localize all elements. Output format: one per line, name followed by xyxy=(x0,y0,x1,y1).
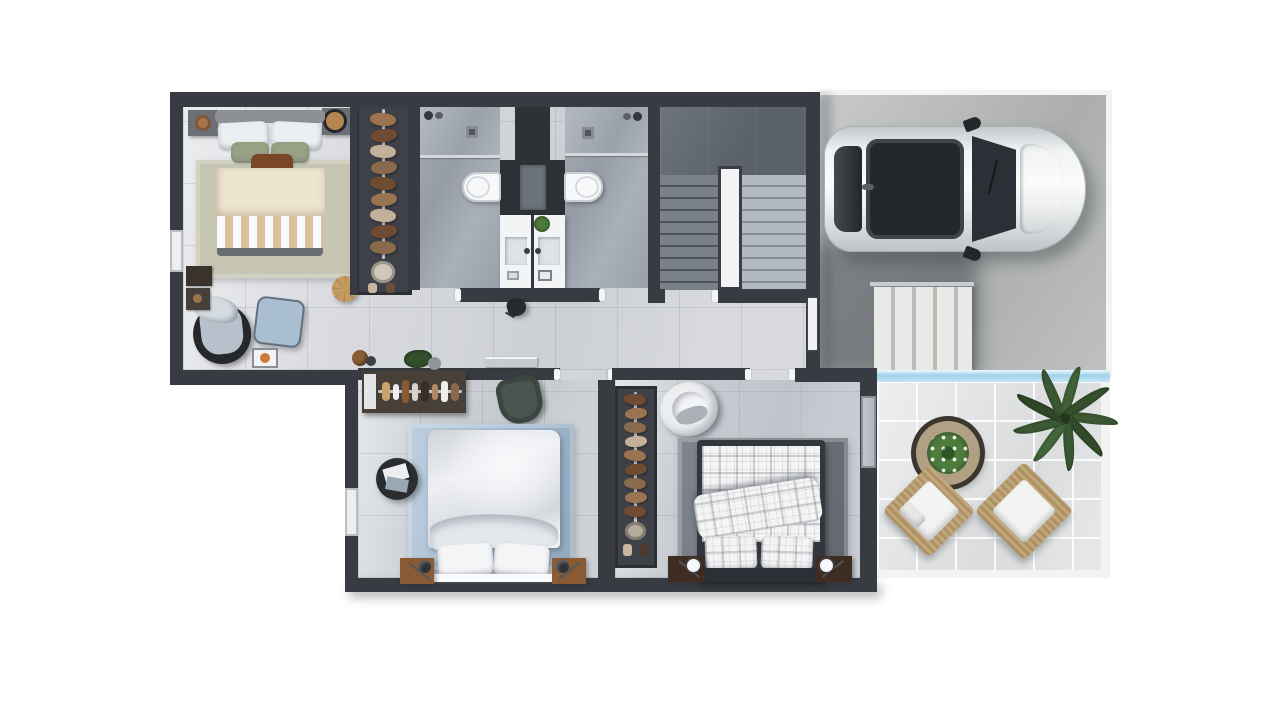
closet-top xyxy=(356,103,412,295)
vanity-plant xyxy=(534,216,550,232)
bottle xyxy=(421,381,429,402)
bed1-duvet xyxy=(215,168,325,218)
hallway-stool xyxy=(505,296,529,320)
bedroom2-window xyxy=(345,488,358,536)
plant-pot xyxy=(428,357,441,370)
sphere-lamp xyxy=(820,559,833,572)
steps-handrail xyxy=(870,282,974,286)
bed2-pillow xyxy=(437,542,494,578)
stair-flight-up xyxy=(742,175,806,290)
wall-stairs-bottom xyxy=(718,289,806,303)
car-panoramic-roof xyxy=(866,139,964,239)
hanging-cloth xyxy=(624,463,647,476)
bed1-headboard xyxy=(215,110,325,123)
door-jamb xyxy=(599,289,605,301)
small-pot xyxy=(366,356,376,366)
shower-glass xyxy=(420,155,500,158)
wall-decor-box xyxy=(186,288,210,310)
driveway-top-edge xyxy=(818,90,1112,95)
bed2-pillow xyxy=(493,542,550,578)
hanging-cloth xyxy=(370,128,397,144)
hanging-cloth xyxy=(624,393,647,406)
closet-shoes xyxy=(386,283,395,293)
hanging-cloth xyxy=(370,192,397,207)
dresser-rail xyxy=(378,390,462,393)
door-jamb xyxy=(455,289,461,301)
chair-cushion xyxy=(991,478,1056,543)
bottle xyxy=(412,383,418,401)
bathroom-spine-upper xyxy=(515,107,550,162)
cosmetics-dresser xyxy=(362,371,466,413)
wall-northwing-bottom xyxy=(170,370,358,385)
toilet-seat xyxy=(466,176,490,198)
shower-right xyxy=(565,107,648,156)
wicker-armchair-right xyxy=(975,462,1074,561)
hanging-cloth xyxy=(371,160,398,175)
patio-right-border xyxy=(1101,382,1110,578)
bedroom3-nightstand-left xyxy=(668,556,704,582)
bed3 xyxy=(697,440,825,582)
bottle xyxy=(451,383,459,401)
magazine xyxy=(385,476,409,493)
door-jamb xyxy=(745,369,751,380)
basket-decor xyxy=(195,115,211,131)
decor-tray xyxy=(252,348,278,368)
laundry-basket xyxy=(371,261,395,283)
door-jamb xyxy=(554,369,560,380)
blue-ottoman xyxy=(252,295,305,348)
wall-desk xyxy=(485,357,537,367)
shower-drain xyxy=(582,127,594,139)
front-door xyxy=(808,298,817,350)
floor-plan-render xyxy=(0,0,1280,720)
bed1-striped-runner xyxy=(217,216,323,248)
sliding-glass-door xyxy=(861,396,876,468)
hanging-cloth xyxy=(370,224,397,240)
exterior-steps xyxy=(874,286,972,376)
hanging-cloth xyxy=(625,491,648,503)
wall-divider-bed2-bed3 xyxy=(598,380,615,578)
wall-southwing-left xyxy=(345,370,358,592)
sphere-lamp xyxy=(687,559,700,572)
bottle xyxy=(402,380,409,403)
round-side-table xyxy=(376,458,418,500)
bed3-headboard xyxy=(697,568,825,582)
toilet-left xyxy=(462,172,501,202)
shower-head xyxy=(424,111,433,120)
bottle xyxy=(382,382,390,401)
hanging-cloth xyxy=(623,449,646,462)
stair-center-wall xyxy=(718,166,742,290)
vanity-sink-right xyxy=(538,237,560,265)
wall-bedroom1-closet-divider xyxy=(350,107,358,295)
closet-shoes xyxy=(639,544,648,556)
bottle xyxy=(432,384,438,400)
patio xyxy=(877,382,1110,578)
stair-flight-down xyxy=(660,175,718,290)
driveway-right-edge xyxy=(1106,94,1112,376)
palm-center xyxy=(1060,413,1070,423)
car-rear-glass xyxy=(834,146,862,232)
bathroom-spine-toilet-wall xyxy=(500,160,565,215)
table-lamp xyxy=(556,560,569,573)
wall-decor-box xyxy=(186,266,212,286)
car-windshield xyxy=(972,136,1016,242)
hanging-cloth xyxy=(370,240,397,254)
wall-top xyxy=(170,92,820,107)
door-jamb xyxy=(712,290,718,302)
palm-plant xyxy=(1037,390,1093,446)
hanging-cloth xyxy=(624,477,647,490)
shower-drain xyxy=(466,126,478,138)
double-vanity xyxy=(500,215,565,288)
closet-shoes xyxy=(623,544,632,556)
vanity-towel xyxy=(538,270,552,281)
hanging-cloth xyxy=(625,435,648,448)
car xyxy=(824,126,1086,252)
hanging-cloth xyxy=(624,421,647,434)
closet-shoes xyxy=(368,283,377,293)
shower-glass xyxy=(565,153,648,156)
closet-basket xyxy=(625,522,646,540)
patio-bottom-border xyxy=(877,570,1110,578)
faucet-right xyxy=(535,248,541,254)
bed1-frame-foot xyxy=(217,248,323,256)
shower-left xyxy=(420,107,500,158)
tray-bowl xyxy=(260,353,270,363)
bedroom1-window xyxy=(170,230,183,272)
table-lamp xyxy=(418,560,431,573)
bedroom2-nightstand-left xyxy=(400,558,434,584)
wall-bath-bottom xyxy=(460,288,600,302)
shower-wand xyxy=(623,113,631,120)
basket-decor xyxy=(326,112,344,130)
wall-bedroom3-top xyxy=(612,368,750,380)
shower-wand xyxy=(435,112,443,119)
bed1 xyxy=(213,110,327,256)
bottle xyxy=(393,384,399,400)
hallway-plant xyxy=(404,350,444,372)
bed3-plaid-pillow xyxy=(704,535,757,571)
toilet-seat xyxy=(575,176,599,198)
bedroom3-nightstand-right xyxy=(816,556,852,582)
wall-stairs-bottom-stub xyxy=(653,289,665,303)
dresser-end-panel xyxy=(364,374,376,409)
vanity-soap xyxy=(507,271,519,280)
hanging-cloth xyxy=(369,112,396,127)
hanging-cloth xyxy=(369,208,396,223)
bed3-plaid-pillow xyxy=(760,535,813,571)
wall-bathB-right xyxy=(648,107,660,303)
bed2 xyxy=(428,430,560,582)
bedroom2-nightstand-right xyxy=(552,558,586,584)
bed2-headboard xyxy=(430,574,558,582)
stair-landing xyxy=(660,107,806,175)
hanging-cloth xyxy=(370,144,397,159)
faucet-left xyxy=(524,248,530,254)
toilet-right xyxy=(564,172,603,202)
spine-glass-panel xyxy=(520,165,546,210)
hanging-cloth xyxy=(624,505,647,518)
decor-dot xyxy=(193,294,202,303)
hanging-cloth xyxy=(369,176,396,192)
wall-bathA-left xyxy=(408,107,420,290)
car-door-handle xyxy=(862,184,874,190)
shower-head xyxy=(633,112,642,121)
hanging-cloth xyxy=(625,407,648,420)
bottle xyxy=(441,381,448,402)
bedroom3-wardrobe xyxy=(615,386,657,568)
